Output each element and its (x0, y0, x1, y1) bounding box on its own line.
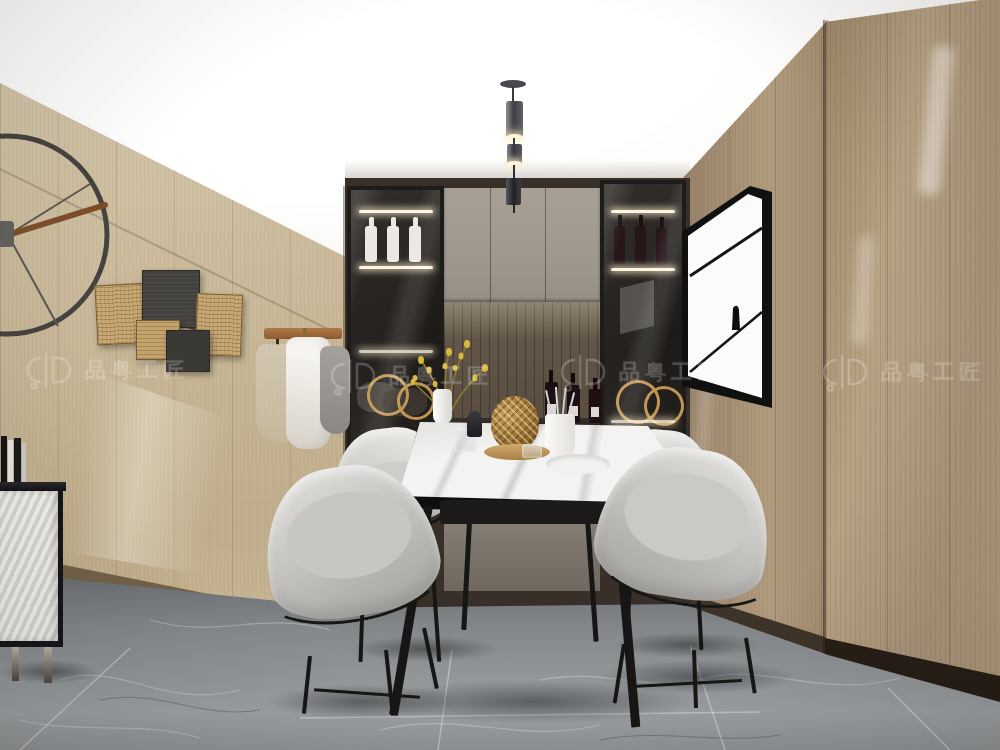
watermark-text: 品粤工匠 (881, 358, 985, 386)
chair-leg (422, 628, 438, 689)
door-seam (545, 188, 546, 302)
book (14, 438, 21, 483)
watermark: 品粤工匠 (330, 356, 493, 396)
pendant-tip (513, 205, 515, 213)
dark-shaker (467, 411, 482, 437)
watermark-logo-icon (330, 356, 380, 396)
glass-reflection (604, 184, 682, 448)
amber-lattice-vase (491, 396, 539, 450)
watermark-logo-icon (26, 350, 76, 390)
watermark: 品粤工匠 (822, 352, 985, 392)
pendant-cylinder (506, 178, 521, 205)
book (22, 443, 26, 483)
chair-leg (744, 638, 756, 694)
pendant-lit-lens (506, 134, 523, 140)
pendant-cable (513, 165, 515, 179)
wardrobe-corner-edge (823, 20, 827, 668)
counter-wine-bottle (589, 389, 601, 423)
pendant-light (498, 80, 528, 215)
chair-stretcher-bar (632, 679, 742, 688)
chair-stretcher-bar (314, 688, 420, 698)
chair-leg (692, 650, 698, 708)
pendant-rod (512, 86, 514, 102)
watermark-logo-icon (560, 352, 610, 392)
artwork-figure (732, 306, 740, 330)
small-glass (522, 444, 542, 458)
door-seam (490, 188, 491, 302)
glass-wine-cabinet-right (600, 180, 686, 452)
sideboard-top (0, 482, 66, 491)
chair-leg (302, 656, 312, 714)
sideboard (0, 436, 72, 678)
book (1, 436, 7, 483)
watermark-text: 品粤工匠 (389, 362, 493, 390)
watermark-text: 品粤工匠 (619, 358, 723, 386)
bottle-neck (549, 370, 553, 383)
chair-leg (613, 644, 626, 704)
clock-hand (8, 205, 105, 235)
sideboard-bottom-rail (0, 641, 63, 647)
pendant-cylinder (506, 101, 523, 138)
pendant-lit-lens (507, 161, 522, 166)
chair-leg (384, 650, 395, 716)
watermark-logo-icon (822, 352, 872, 392)
dining-chair-front-left (262, 460, 442, 718)
clock-hub (0, 221, 14, 247)
bottle-label (591, 407, 599, 417)
dining-chair-front-right (592, 440, 776, 698)
watermark: 品粤工匠 (26, 350, 189, 390)
sideboard-ribbed-door (0, 491, 58, 641)
book (8, 440, 13, 483)
sideboard-leg (12, 647, 19, 681)
sideboard-leg (44, 647, 52, 683)
watermark: 品粤工匠 (560, 352, 723, 392)
watermark-text: 品粤工匠 (85, 356, 189, 384)
sideboard-side-edge (58, 491, 63, 643)
dining-room-render: 品粤工匠 品粤工匠 品粤工匠 品粤工匠 (0, 0, 1000, 750)
